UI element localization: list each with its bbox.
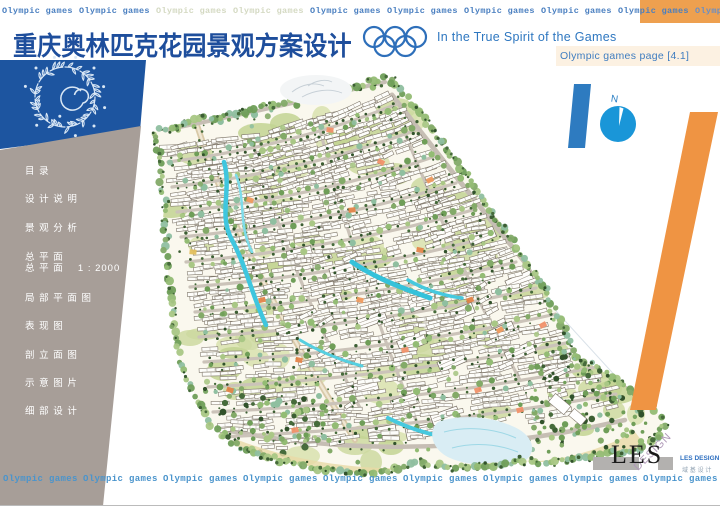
svg-text:N: N — [610, 94, 619, 106]
